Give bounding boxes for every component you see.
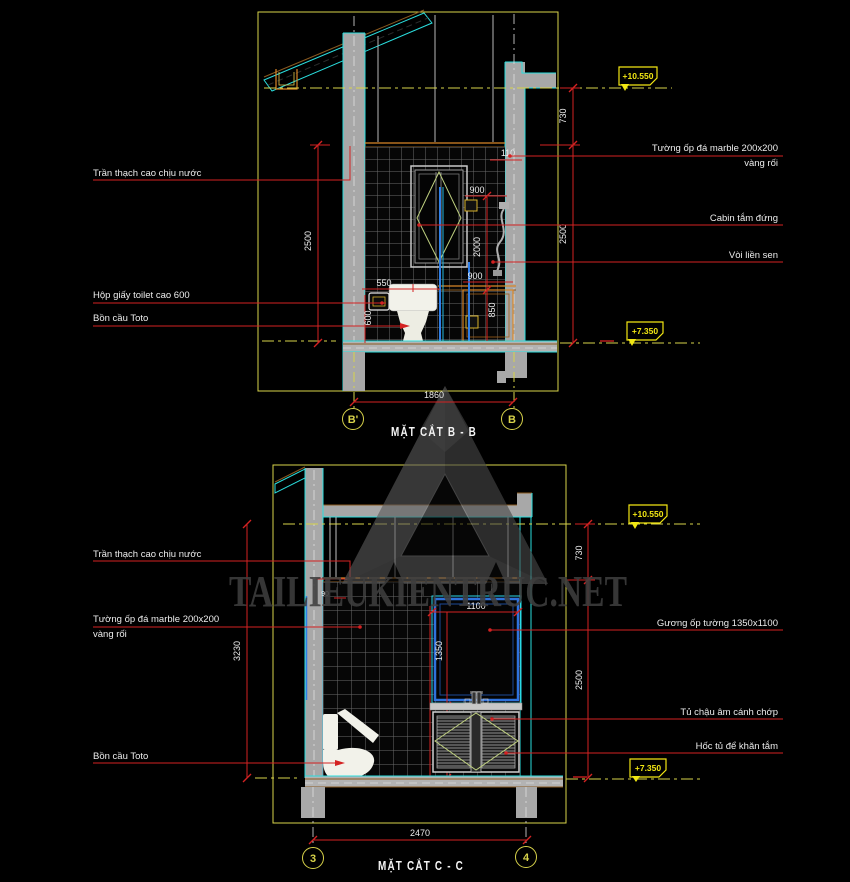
cad-canvas: +10.550 +7.350 730 2500 2500: [0, 0, 850, 882]
dim-900-bench: 900: [467, 271, 482, 281]
section-c-title: MẶT CẮT C - C: [378, 858, 464, 873]
grid-bubble-c-left-label: 3: [310, 853, 316, 865]
dim-right-c: 730 2500: [566, 520, 595, 782]
grid-bubble-c-right-label: 4: [523, 852, 530, 864]
level-value: +7.350: [635, 763, 662, 773]
dim-2000: 2000: [472, 237, 482, 257]
grid-bubble-b-left-label: B': [348, 414, 359, 426]
label-wall-marble-2: vàng rối: [744, 158, 778, 169]
section-c-caption: 2470 3 4 MẶT CẮT C - C: [303, 828, 537, 873]
dim-2500-left: 2500: [303, 231, 313, 251]
dim-1350: 1350: [434, 641, 444, 661]
label-toilet: Bồn cầu Toto: [93, 751, 148, 762]
shower-cabin: [411, 166, 477, 267]
dim-730: 730: [574, 545, 584, 560]
label-cabinet: Tủ chậu âm cánh chớp: [680, 707, 778, 718]
label-paper-box: Hộp giấy toilet cao 600: [93, 290, 190, 301]
toilet-paper-holder: [369, 293, 389, 310]
dim-3230: 3230: [232, 641, 242, 661]
dim-1860: 1860: [424, 390, 444, 400]
grid-bubble-b-right-label: B: [508, 414, 516, 426]
gutter: [276, 69, 297, 89]
ceiling-b: [365, 143, 505, 147]
section-b-title: MẶT CẮT B - B: [391, 424, 477, 439]
dim-left-b: 2500: [303, 141, 330, 347]
dim-2500: 2500: [558, 224, 568, 244]
dim-850: 850: [487, 302, 497, 317]
floor-c: [301, 776, 563, 847]
drawing-svg: +10.550 +7.350 730 2500 2500: [0, 0, 850, 882]
dim-900-cabin: 900: [469, 185, 484, 195]
label-mirror: Gương ốp tường 1350x1100: [657, 618, 778, 629]
basin-cabinet: [433, 712, 519, 772]
left-wall: [343, 16, 365, 391]
dim-left-c: 3230: [232, 520, 251, 782]
watermark-site-text: TAILIEUKIENTRUC.NET: [229, 567, 627, 616]
dim-right-b: 730 2500: [540, 84, 580, 347]
label-toilet: Bồn cầu Toto: [93, 313, 148, 324]
label-ceiling: Trần thạch cao chịu nước: [93, 549, 202, 560]
ceiling-hangers: [378, 15, 493, 142]
level-value: +7.350: [632, 326, 659, 336]
label-wall-marble: Tường ốp đá marble 200x200: [652, 143, 778, 154]
dim-2500: 2500: [574, 670, 584, 690]
dim-2470: 2470: [410, 828, 430, 838]
bench-handle: [466, 316, 478, 328]
label-wall-marble-2: vàng rối: [93, 629, 127, 640]
elevation-flag-floor-b: +7.350: [627, 322, 663, 346]
elevation-flag-top-c: +10.550: [629, 505, 667, 529]
watermark-logo: [342, 386, 548, 584]
left-wall-c: [305, 468, 323, 782]
dim-600: 600: [363, 310, 373, 325]
label-ceiling: Trần thạch cao chịu nước: [93, 168, 202, 179]
level-value: +10.550: [633, 509, 664, 519]
section-b-drawing: +10.550 +7.350 730 2500 2500: [93, 10, 783, 408]
level-value: +10.550: [623, 71, 654, 81]
labels-right-c: Gương ốp tường 1350x1100 Tủ chậu âm cánh…: [488, 618, 783, 755]
dim-730: 730: [558, 108, 568, 123]
label-shower: Vòi liền sen: [729, 250, 778, 261]
dim-550: 550: [376, 278, 391, 288]
elevation-flag-top-b: +10.550: [619, 67, 657, 91]
label-wall-marble: Tường ốp đá marble 200x200: [93, 614, 219, 625]
label-cabin: Cabin tắm đứng: [710, 213, 778, 224]
shower-mixer: [465, 200, 477, 211]
label-niche: Hốc tủ để khăn tắm: [696, 741, 778, 752]
